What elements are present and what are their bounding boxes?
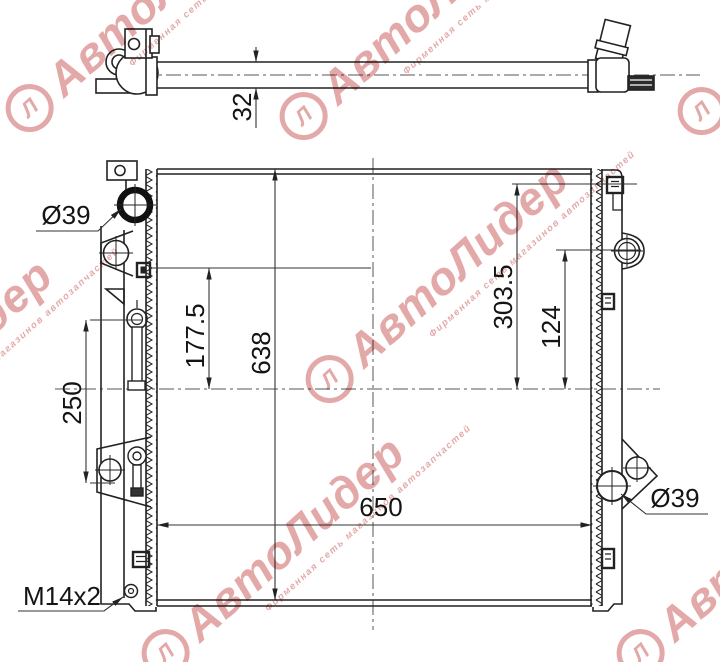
top-bar bbox=[150, 62, 597, 88]
left-notch bbox=[106, 289, 124, 304]
top-right-slot bbox=[613, 193, 622, 210]
core bbox=[146, 169, 602, 606]
petcock bbox=[128, 447, 146, 496]
dim-height-label: 638 bbox=[248, 331, 274, 374]
mid-right-clip bbox=[602, 294, 614, 309]
top-profile-view bbox=[96, 19, 654, 128]
left-serrated-edge bbox=[146, 169, 157, 606]
top-left-bracket bbox=[107, 161, 137, 180]
dim-inlet-diameter-label: Ø39 bbox=[41, 202, 90, 228]
front-view bbox=[95, 161, 657, 611]
radiator-drawing bbox=[0, 0, 720, 662]
dim-lower-mount-label: 124 bbox=[538, 305, 564, 348]
top-right-fitting bbox=[588, 19, 654, 92]
dim-depth-label: 32 bbox=[229, 93, 255, 122]
dim-filler-offset-label: 177.5 bbox=[182, 303, 208, 368]
radiator-drawing-page: 32 Ø39 177.5 638 303.5 124 250 650 Ø39 M… bbox=[0, 0, 720, 662]
top-left-fitting bbox=[96, 29, 159, 95]
dim-drain-thread-label: M14x2 bbox=[23, 583, 101, 609]
filler-neck bbox=[127, 300, 147, 390]
dim-upper-mount-label: 303.5 bbox=[490, 264, 516, 329]
outlet-stub bbox=[628, 76, 654, 90]
dim-bracket-span-label: 250 bbox=[59, 381, 85, 424]
top-right-clip bbox=[607, 177, 623, 193]
dim-outlet-diameter-label: Ø39 bbox=[650, 485, 699, 511]
drain-plug bbox=[125, 585, 138, 598]
right-serrated-edge bbox=[591, 169, 602, 606]
dim-width-label: 650 bbox=[359, 494, 402, 520]
